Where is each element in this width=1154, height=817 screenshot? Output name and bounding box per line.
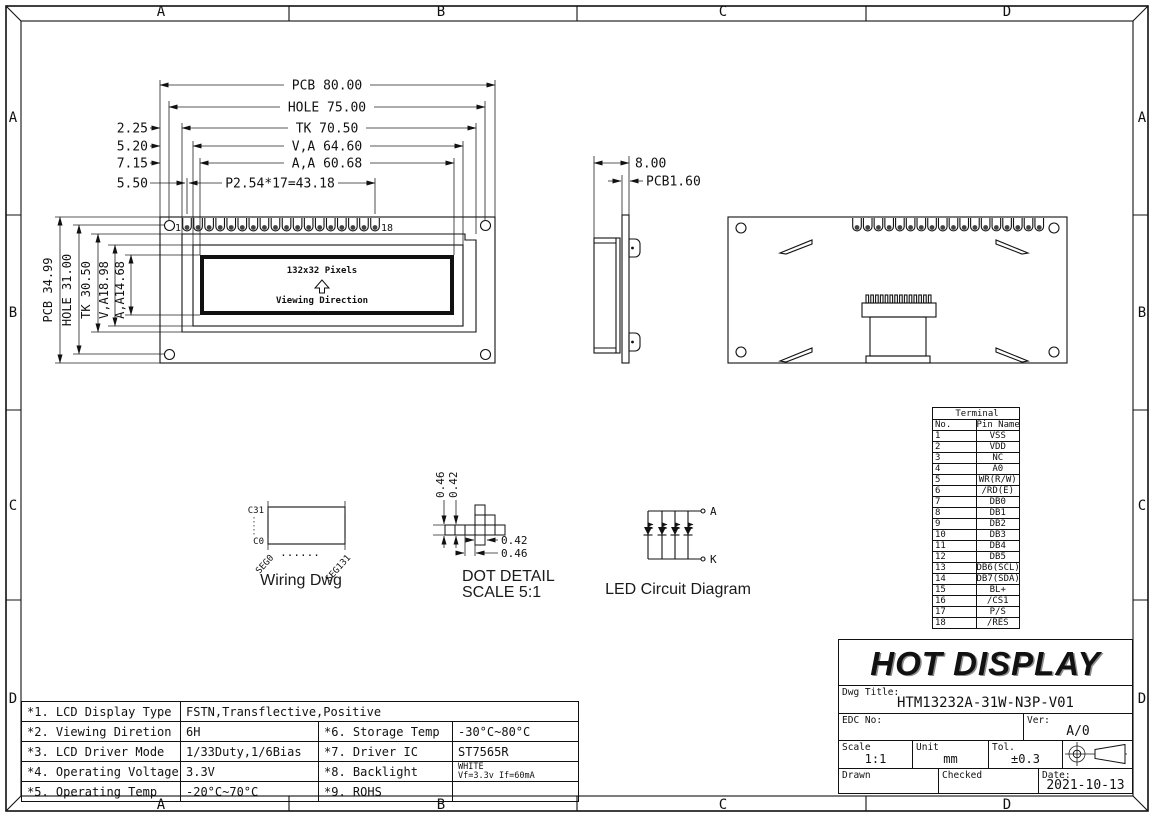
spec-value: FSTN,Transflective,Positive [181, 702, 579, 722]
terminal-pin-name: DB3 [976, 530, 1020, 541]
dim-offset-2: 5.20 [117, 140, 148, 155]
dim-tk-height: TK 30.50 [79, 261, 93, 319]
drawn-label: Drawn [842, 770, 871, 781]
viewing-direction-label: Viewing Direction [276, 295, 368, 306]
terminal-pin-no: 7 [933, 497, 977, 508]
dot-detail-caption: DOT DETAIL [462, 568, 555, 585]
seg-dots: ...... [280, 546, 320, 559]
terminal-table: Terminal No. Pin Name 1VSS2VDD3NC4A05WR(… [932, 407, 1020, 629]
terminal-pin-no: 2 [933, 442, 977, 453]
dim-pcb-height: PCB 34.99 [41, 257, 55, 322]
dim-side-pcb: PCB1.60 [646, 175, 701, 190]
ver-value: A/0 [1024, 724, 1132, 739]
dim-pin-pitch: P2.54*17=43.18 [225, 177, 335, 192]
terminal-pin-name: VDD [976, 442, 1020, 453]
front-view: 1 18 132x32 Pixels Viewing Direction [160, 217, 495, 363]
dot-dim-bottom-inner: 0.42 [501, 534, 528, 547]
front-view-dimensions: PCB 80.00 HOLE 75.00 TK 70.50 V,A 64.60 … [41, 79, 495, 364]
terminal-pin-no: 4 [933, 464, 977, 475]
dim-pcb-width: PCB 80.00 [292, 79, 362, 94]
terminal-pin-name: BL+ [976, 585, 1020, 596]
company-name: HOT DISPLAY [839, 640, 1132, 683]
mount-hole [165, 221, 175, 231]
com-bottom-label: C0 [253, 537, 264, 547]
terminal-pin-no: 18 [933, 618, 977, 629]
terminal-pin-no: 5 [933, 475, 977, 486]
title-block: HOT DISPLAY Dwg Title: HTM13232A-31W-N3P… [838, 639, 1133, 794]
dwg-title-value: HTM13232A-31W-N3P-V01 [839, 695, 1132, 711]
anode-label: A [710, 505, 717, 518]
com-top-label: C31 [248, 506, 264, 516]
dim-va-width: V,A 64.60 [292, 140, 362, 155]
spec-label: *9. ROHS [319, 782, 453, 802]
scale-value: 1:1 [839, 752, 912, 766]
side-view: 8.00 PCB1.60 [594, 156, 701, 363]
spec-label: *3. LCD Driver Mode [22, 742, 181, 762]
backlight-connector [862, 303, 936, 317]
zone-bottom-c: C [712, 797, 734, 813]
spec-value: -30°C~80°C [453, 722, 579, 742]
terminal-pin-name: DB0 [976, 497, 1020, 508]
bezel-clip [996, 240, 1028, 254]
projection-symbol-icon [1063, 741, 1132, 767]
terminal-pin-no: 14 [933, 574, 977, 585]
mount-hole [736, 223, 746, 233]
terminal-pin-no: 17 [933, 607, 977, 618]
terminal-pin-name: DB4 [976, 541, 1020, 552]
unit-value: mm [913, 752, 988, 766]
spec-label: *8. Backlight [319, 762, 453, 782]
terminal-pin-no: 13 [933, 563, 977, 574]
zone-left-a: A [2, 110, 24, 126]
cathode-label: K [710, 553, 717, 566]
terminal-pin-no: 1 [933, 431, 977, 442]
mount-hole [1049, 223, 1059, 233]
terminal-pin-no: 10 [933, 530, 977, 541]
date-value: 2021-10-13 [1039, 778, 1132, 793]
spec-table: *1. LCD Display Type FSTN,Transflective,… [21, 701, 578, 802]
dot-dim-left-inner: 0.42 [447, 472, 460, 499]
led-circuit-caption: LED Circuit Diagram [605, 581, 751, 598]
zone-top-d: D [996, 4, 1018, 20]
dim-tk-width: TK 70.50 [296, 122, 359, 137]
back-view [728, 217, 1067, 363]
edc-no-label: EDC No: [842, 715, 882, 726]
dot-dim-left-outer: 0.46 [434, 472, 447, 499]
mount-hole [1049, 347, 1059, 357]
dim-hole-height: HOLE 31.00 [60, 254, 74, 326]
mount-tab [629, 333, 640, 351]
dim-aa-height: A,A14.68 [113, 261, 127, 319]
zone-right-c: C [1131, 498, 1153, 514]
spec-value: ST7565R [453, 742, 579, 762]
zone-right-b: B [1131, 305, 1153, 321]
zone-top-c: C [712, 4, 734, 20]
bezel-clip [780, 240, 812, 254]
pin-pads-front [183, 218, 380, 231]
dim-hole-width: HOLE 75.00 [288, 101, 366, 116]
terminal-pin-name: DB6(SCL) [976, 563, 1020, 574]
terminal-pin-name: DB1 [976, 508, 1020, 519]
backlight-connector-pins [866, 295, 931, 303]
terminal-pin-name: DB2 [976, 519, 1020, 530]
side-pcb-bar [622, 215, 629, 363]
bezel-clip [780, 348, 812, 362]
pin-pads-back [853, 218, 1044, 231]
dim-va-height: V,A18.98 [97, 261, 111, 319]
spec-label: *2. Viewing Diretion [22, 722, 181, 742]
terminal-pin-name: WR(R/W) [976, 475, 1020, 486]
engineering-drawing-sheet: 1 18 132x32 Pixels Viewing Direction PCB… [0, 0, 1154, 817]
cathode-terminal [701, 557, 705, 561]
dim-offset-3: 7.15 [117, 157, 148, 172]
spec-label: *4. Operating Voltage [22, 762, 181, 782]
terminal-pin-name: A0 [976, 464, 1020, 475]
terminal-col-no: No. [933, 420, 977, 431]
terminal-pin-no: 15 [933, 585, 977, 596]
tol-value: ±0.3 [989, 752, 1062, 766]
spec-label: *5. Operating Temp [22, 782, 181, 802]
pin-first-label: 1 [175, 223, 181, 234]
mount-hole [481, 221, 491, 231]
spec-value: -20°C~70°C [181, 782, 319, 802]
backlight-rating: Vf=3.3v If=60mA [458, 772, 578, 781]
spec-value [453, 782, 579, 802]
dot-dim-bottom-outer: 0.46 [501, 547, 528, 560]
zone-bottom-d: D [996, 797, 1018, 813]
mount-hole [165, 350, 175, 360]
spec-value: WHITE Vf=3.3v If=60mA [453, 762, 579, 782]
terminal-pin-name: VSS [976, 431, 1020, 442]
dim-side-width: 8.00 [635, 157, 666, 172]
spec-value: 1/33Duty,1/6Bias [181, 742, 319, 762]
terminal-pin-name: /RD(E) [976, 486, 1020, 497]
terminal-table-title: Terminal [933, 408, 1020, 420]
led-circuit-diagram: A K LED Circuit Diagram [605, 505, 751, 598]
terminal-pin-name: DB7(SDA) [976, 574, 1020, 585]
wiring-diagram: C31 C0 SEG0 ...... SEG131 Wiring Dwg [248, 501, 353, 589]
checked-label: Checked [942, 770, 982, 781]
wiring-caption: Wiring Dwg [260, 572, 342, 589]
zone-right-a: A [1131, 110, 1153, 126]
pin-last-label: 18 [381, 223, 393, 234]
anode-terminal [701, 509, 705, 513]
dim-offset-4: 5.50 [117, 177, 148, 192]
terminal-pin-name: /RES [976, 618, 1020, 629]
mount-tab [629, 239, 640, 257]
zone-left-c: C [2, 498, 24, 514]
terminal-pin-no: 3 [933, 453, 977, 464]
zone-right-d: D [1131, 691, 1153, 707]
dim-offset-1: 2.25 [117, 122, 148, 137]
zone-top-a: A [150, 4, 172, 20]
terminal-pin-name: P/S [976, 607, 1020, 618]
mount-hole [481, 350, 491, 360]
dim-aa-width: A,A 60.68 [292, 157, 362, 172]
dot-detail-diagram: 0.46 0.42 0.42 0.46 DOT DETAIL SCALE 5:1 [433, 472, 555, 602]
terminal-pin-name: /CS1 [976, 596, 1020, 607]
terminal-col-name: Pin Name [976, 420, 1020, 431]
dot-detail-scale: SCALE 5:1 [462, 584, 541, 601]
spec-label: *7. Driver IC [319, 742, 453, 762]
terminal-pin-no: 11 [933, 541, 977, 552]
spec-label: *1. LCD Display Type [22, 702, 181, 722]
mount-hole [736, 347, 746, 357]
spec-value: 3.3V [181, 762, 319, 782]
spec-value: 6H [181, 722, 319, 742]
bezel-clip [996, 348, 1028, 362]
terminal-pin-no: 12 [933, 552, 977, 563]
terminal-pin-no: 6 [933, 486, 977, 497]
lcd-pixels-label: 132x32 Pixels [287, 265, 357, 276]
terminal-pin-name: DB5 [976, 552, 1020, 563]
spec-label: *6. Storage Temp [319, 722, 453, 742]
terminal-pin-no: 9 [933, 519, 977, 530]
zone-left-b: B [2, 305, 24, 321]
terminal-pin-name: NC [976, 453, 1020, 464]
terminal-pin-no: 16 [933, 596, 977, 607]
terminal-pin-no: 8 [933, 508, 977, 519]
zone-top-b: B [430, 4, 452, 20]
